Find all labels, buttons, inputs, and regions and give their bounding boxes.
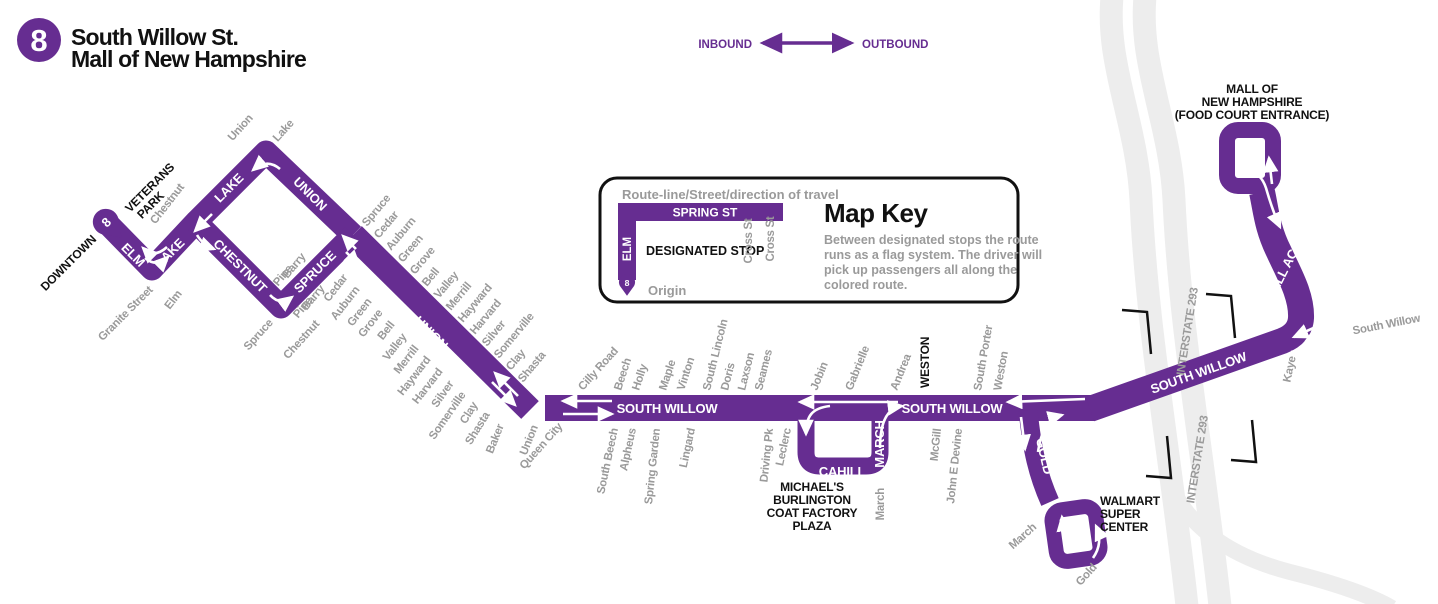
street-label-south-willow-1: SOUTH WILLOW (617, 401, 719, 416)
legend-outbound: OUTBOUND (862, 39, 928, 51)
sw-below-3: South Beech (595, 427, 621, 495)
direction-legend: INBOUND OUTBOUND (698, 39, 928, 51)
key-caption: Route-line/Street/direction of travel (622, 187, 839, 202)
key-title: Map Key (824, 198, 928, 228)
key-cross-st-1: Cross St (743, 218, 755, 263)
route-number: 8 (30, 23, 47, 58)
walmart-line3: CENTER (1100, 520, 1149, 534)
cross-streets-sw-below: Baker Union Queen City South Beech Alphe… (484, 420, 965, 505)
sw-below-4: Alpheus (618, 427, 639, 472)
michaels-line2: BURLINGTON (773, 493, 851, 507)
key-origin-label: Origin (648, 283, 686, 298)
street-label-cahill: CAHILL (819, 464, 866, 479)
cross-elm: Elm (163, 288, 185, 311)
header: 8 South Willow St. Mall of New Hampshire (17, 18, 306, 72)
label-walmart: WALMART SUPER CENTER (1100, 494, 1161, 534)
cross-kaye: Kaye (1281, 355, 1298, 383)
cross-granite-street: Granite Street (96, 284, 156, 344)
street-label-march: MARCH (872, 420, 887, 467)
street-label-chestnut: CHESTNUT (210, 236, 270, 296)
label-downtown: DOWNTOWN (38, 232, 99, 293)
sw-above-2: Holly (630, 362, 650, 392)
key-elm: ELM (622, 237, 634, 261)
sw-above-13: Weston (992, 350, 1011, 391)
label-weston-stop: WESTON (918, 337, 932, 388)
walmart-line1: WALMART (1100, 494, 1161, 508)
sw-above-9: Jobin (809, 360, 831, 392)
sw-below-0: Baker (484, 422, 507, 456)
cross-streets-sw-above: Cilly Road Beech Holly Maple Vinton Sout… (576, 318, 1011, 393)
michaels-line1: MICHAEL'S (780, 480, 844, 494)
sw-above-12: South Porter (972, 324, 995, 392)
key-origin-pin-number: 8 (625, 278, 630, 288)
sw-above-10: Gabrielle (844, 344, 873, 392)
sw-below-8: Leclerc (774, 426, 794, 467)
key-body-line3: pick up passengers all along the (824, 263, 1017, 277)
street-label-south-willow-2: SOUTH WILLOW (902, 401, 1004, 416)
sw-below-7: Driving Pk (758, 427, 776, 483)
label-michaels-plaza: MICHAEL'S BURLINGTON COAT FACTORY PLAZA (767, 480, 858, 533)
route-map-page: 8 ELM LAKE LAKE UNION CHESTNUT SPRUCE UN… (0, 0, 1438, 604)
map-key: Route-line/Street/direction of travel SP… (600, 178, 1042, 302)
sw-below-5: Spring Garden (643, 428, 663, 505)
mall-line1: MALL OF (1226, 82, 1278, 96)
sw-below-6: Lingard (678, 427, 698, 469)
key-body-line4: colored route. (824, 278, 907, 292)
arrow-walmart-loop-1 (1062, 517, 1066, 543)
legend-inbound: INBOUND (698, 39, 752, 51)
cross-march-cahill: March (875, 488, 887, 521)
michaels-line3: COAT FACTORY (767, 506, 858, 520)
label-mall-of-nh: MALL OF NEW HAMPSHIRE (FOOD COURT ENTRAN… (1175, 82, 1330, 122)
sw-above-11: Andrea (889, 352, 915, 392)
sw-above-4: Vinton (675, 356, 697, 392)
cross-union-top: Union (226, 112, 256, 143)
key-cross-st-2: Cross St (765, 216, 777, 261)
cross-march-gold: March (1007, 521, 1039, 552)
mall-subtitle: (FOOD COURT ENTRANCE) (1175, 108, 1330, 122)
route-map-svg: 8 ELM LAKE LAKE UNION CHESTNUT SPRUCE UN… (0, 0, 1438, 604)
cross-spruce-below: Spruce (242, 317, 276, 353)
cross-south-willow-cont: South Willow (1352, 313, 1422, 338)
michaels-line4: PLAZA (793, 519, 833, 533)
route-walmart-loop (1051, 505, 1102, 563)
key-spring-st: SPRING ST (673, 206, 738, 220)
walmart-line2: SUPER (1100, 507, 1141, 521)
key-body-line1: Between designated stops the route (824, 233, 1039, 247)
sw-below-9: McGill (929, 428, 944, 462)
sw-above-6: Doris (719, 362, 737, 392)
cross-lake-top: Lake (271, 118, 297, 145)
cross-chestnut-below: Chestnut (281, 318, 322, 362)
route-mall-loop (1227, 130, 1273, 186)
mall-line2: NEW HAMPSHIRE (1202, 95, 1303, 109)
key-body-line2: runs as a flag system. The driver will (824, 248, 1042, 262)
page-title-line2: Mall of New Hampshire (71, 46, 306, 72)
sw-below-10: John E Devine (945, 428, 965, 504)
